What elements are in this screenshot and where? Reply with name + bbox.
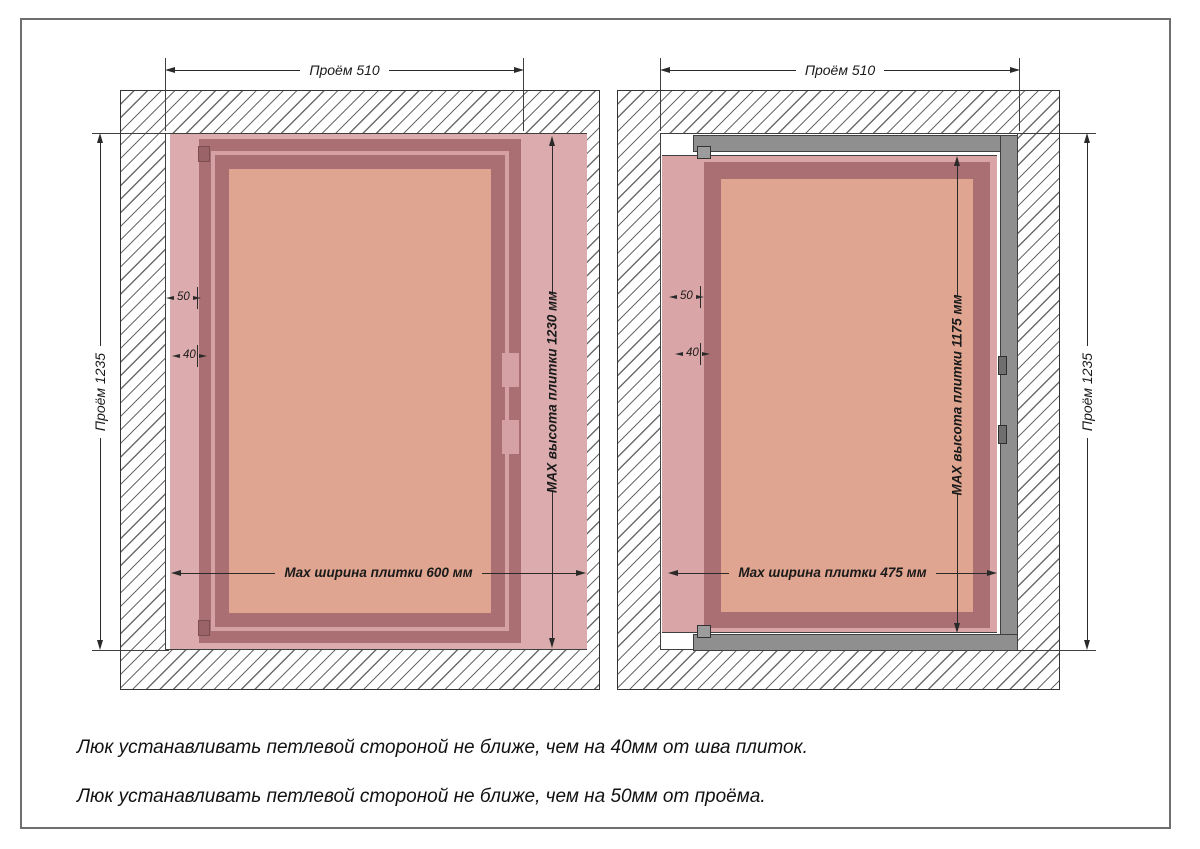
note-opening-offset: Люк устанавливать петлевой стороной не б… bbox=[77, 786, 766, 808]
right-dim-offset-50-label: 50 bbox=[677, 291, 696, 303]
right-dim-opening-width-label: Проём 510 bbox=[796, 63, 884, 77]
right-dim-offset-40-label: 40 bbox=[683, 348, 702, 360]
left-hinge-bottom bbox=[198, 620, 210, 636]
left-dim-offset-40-label: 40 bbox=[180, 350, 199, 362]
right-dim-max-tile-width-label: Max ширина плитки 475 мм bbox=[729, 566, 935, 580]
right-dim-opening-height-label: Проём 1235 bbox=[1080, 352, 1094, 430]
right-latch-top bbox=[998, 356, 1007, 375]
left-hinge-top bbox=[198, 146, 210, 162]
right-latch-bottom bbox=[998, 425, 1007, 444]
right-hinge-bottom bbox=[697, 625, 711, 638]
right-dim-max-tile-height-label: MAX высота плитки 1175 мм bbox=[950, 294, 964, 495]
left-dim-max-tile-height-label: MAX высота плитки 1230 мм bbox=[545, 291, 559, 493]
right-ext-side-a bbox=[1008, 133, 1096, 134]
left-dim-offset-50-label: 50 bbox=[174, 292, 193, 304]
left-dim-opening-width-label: Проём 510 bbox=[300, 63, 388, 77]
left-door-panel bbox=[229, 169, 491, 613]
right-door-panel bbox=[721, 179, 973, 612]
left-ext-side-a bbox=[92, 133, 169, 134]
right-metal-frame-right bbox=[1000, 135, 1018, 651]
note-seam-offset: Люк устанавливать петлевой стороной не б… bbox=[77, 737, 808, 759]
drawing-page: Проём 510 Проём 1235 MAX высота плитки 1… bbox=[0, 0, 1200, 849]
left-latch-bottom bbox=[502, 420, 519, 454]
right-metal-frame-top bbox=[693, 135, 1018, 152]
left-ext-side-b bbox=[92, 650, 169, 651]
left-dim-opening-height-label: Проём 1235 bbox=[93, 352, 107, 430]
right-hinge-top bbox=[697, 146, 711, 159]
left-dim-max-tile-width-label: Max ширина плитки 600 мм bbox=[275, 566, 481, 580]
left-latch-top bbox=[502, 353, 519, 387]
right-ext-side-b bbox=[1008, 650, 1096, 651]
right-metal-frame-bottom bbox=[693, 634, 1018, 651]
